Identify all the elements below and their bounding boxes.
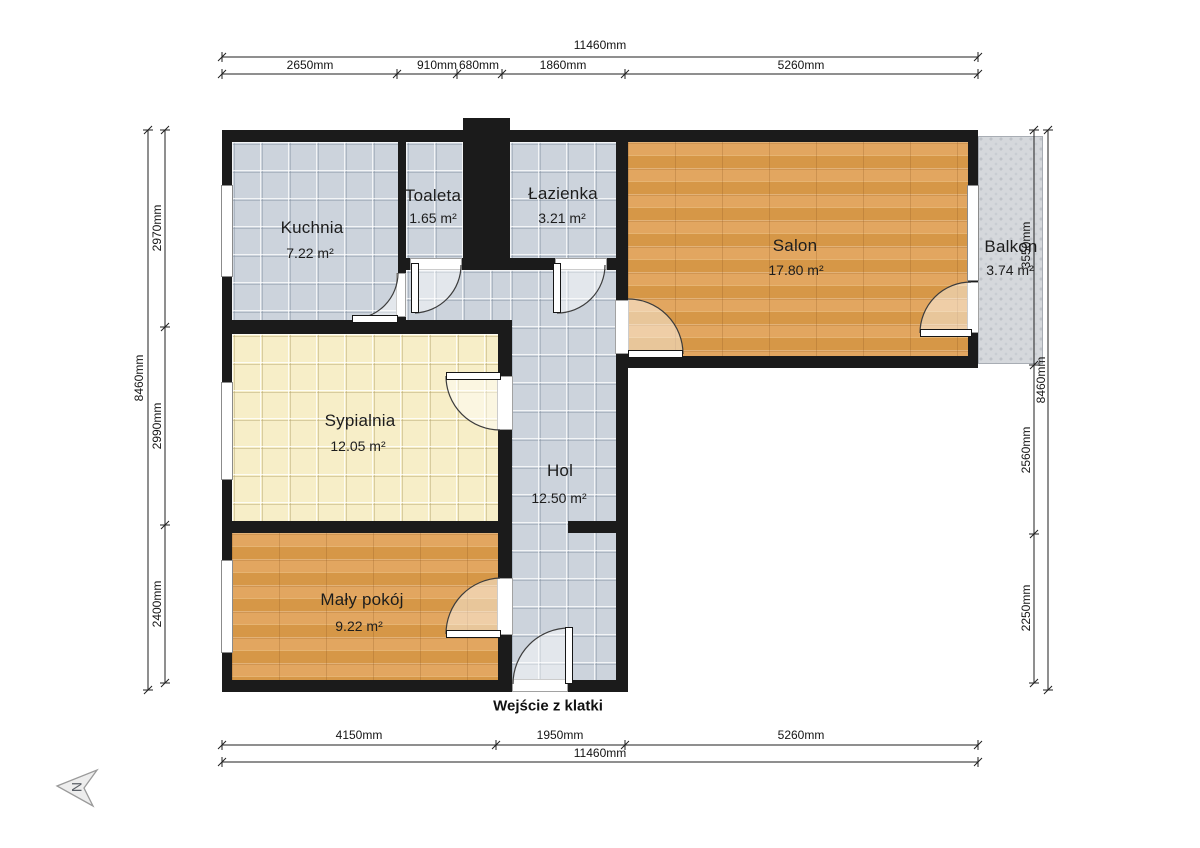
dim-bottom-seg-2: 1950mm [537,728,584,742]
maly-pokoj-door-leaf [446,630,501,638]
room-label-lazienka: Łazienka [528,184,598,204]
door-swing-wedges [352,265,971,684]
dim-top-seg-5: 5260mm [778,58,825,72]
dim-left-total: 8460mm [132,355,146,402]
entrance-label: Wejście z klatki [493,698,603,715]
room-area-sypialnia: 12.05 m² [330,438,385,454]
room-area-toaleta: 1.65 m² [409,210,456,226]
salon-door-leaf [628,350,683,358]
dim-top-total: 11460mm [574,38,626,52]
dim-top-seg-1: 2650mm [287,58,334,72]
sypialnia-door-leaf [446,372,501,380]
dim-right-seg-2: 2560mm [1019,427,1033,474]
room-label-hol: Hol [547,461,573,481]
dim-right-seg-3: 2250mm [1019,585,1033,632]
room-label-toaleta: Toaleta [405,186,461,206]
dim-bottom-seg-1: 4150mm [336,728,383,742]
room-area-maly-pokoj: 9.22 m² [335,618,382,634]
north-letter: N [69,782,85,792]
dim-top-seg-2: 910mm [417,58,457,72]
lazienka-door-swing [557,265,605,313]
kuchnia-door-swing [352,273,398,319]
room-area-lazienka: 3.21 m² [538,210,585,226]
north-arrow: N [57,770,97,806]
room-area-hol: 12.50 m² [531,490,586,506]
dim-top-seg-3: 680mm [459,58,499,72]
sypialnia-door-swing [446,376,500,430]
balkon-door-swing [920,282,971,333]
room-label-salon: Salon [773,236,817,256]
dim-bottom-seg-3: 5260mm [778,728,825,742]
room-label-sypialnia: Sypialnia [325,411,396,431]
kuchnia-door-leaf [352,315,398,323]
toaleta-door-leaf [411,263,419,313]
entrance-door-swing [513,628,569,684]
salon-door-swing [628,299,683,354]
dim-left-seg-3: 2400mm [150,581,164,628]
room-area-salon: 17.80 m² [768,262,823,278]
entrance-door-leaf [565,627,573,684]
room-label-kuchnia: Kuchnia [281,218,344,238]
room-label-maly-pokoj: Mały pokój [320,590,403,610]
lazienka-door-leaf [553,263,561,313]
dim-left-seg-2: 2990mm [150,403,164,450]
dimension-lines-layer: N [0,0,1200,848]
dim-top-seg-4: 1860mm [540,58,587,72]
dim-right-seg-1: 3550mm [1019,222,1033,269]
balkon-door-leaf [920,329,972,337]
dim-left-seg-1: 2970mm [150,205,164,252]
floor-plan-canvas: N Kuchnia 7.22 m² Toaleta 1.65 m² Łazien… [0,0,1200,848]
dim-right-total: 8460mm [1034,357,1048,404]
dim-bottom-total: 11460mm [574,746,626,760]
room-area-kuchnia: 7.22 m² [286,245,333,261]
